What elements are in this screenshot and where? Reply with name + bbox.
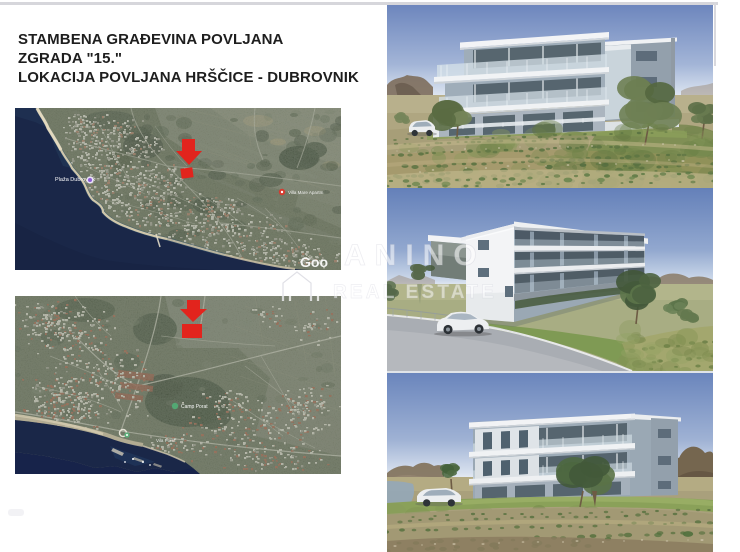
svg-text:Goo: Goo: [300, 254, 328, 270]
svg-text:Vila Porat: Vila Porat: [156, 438, 176, 443]
svg-text:Villa Mare Apartm: Villa Mare Apartm: [288, 190, 324, 195]
svg-text:Camp Porat: Camp Porat: [181, 404, 208, 410]
